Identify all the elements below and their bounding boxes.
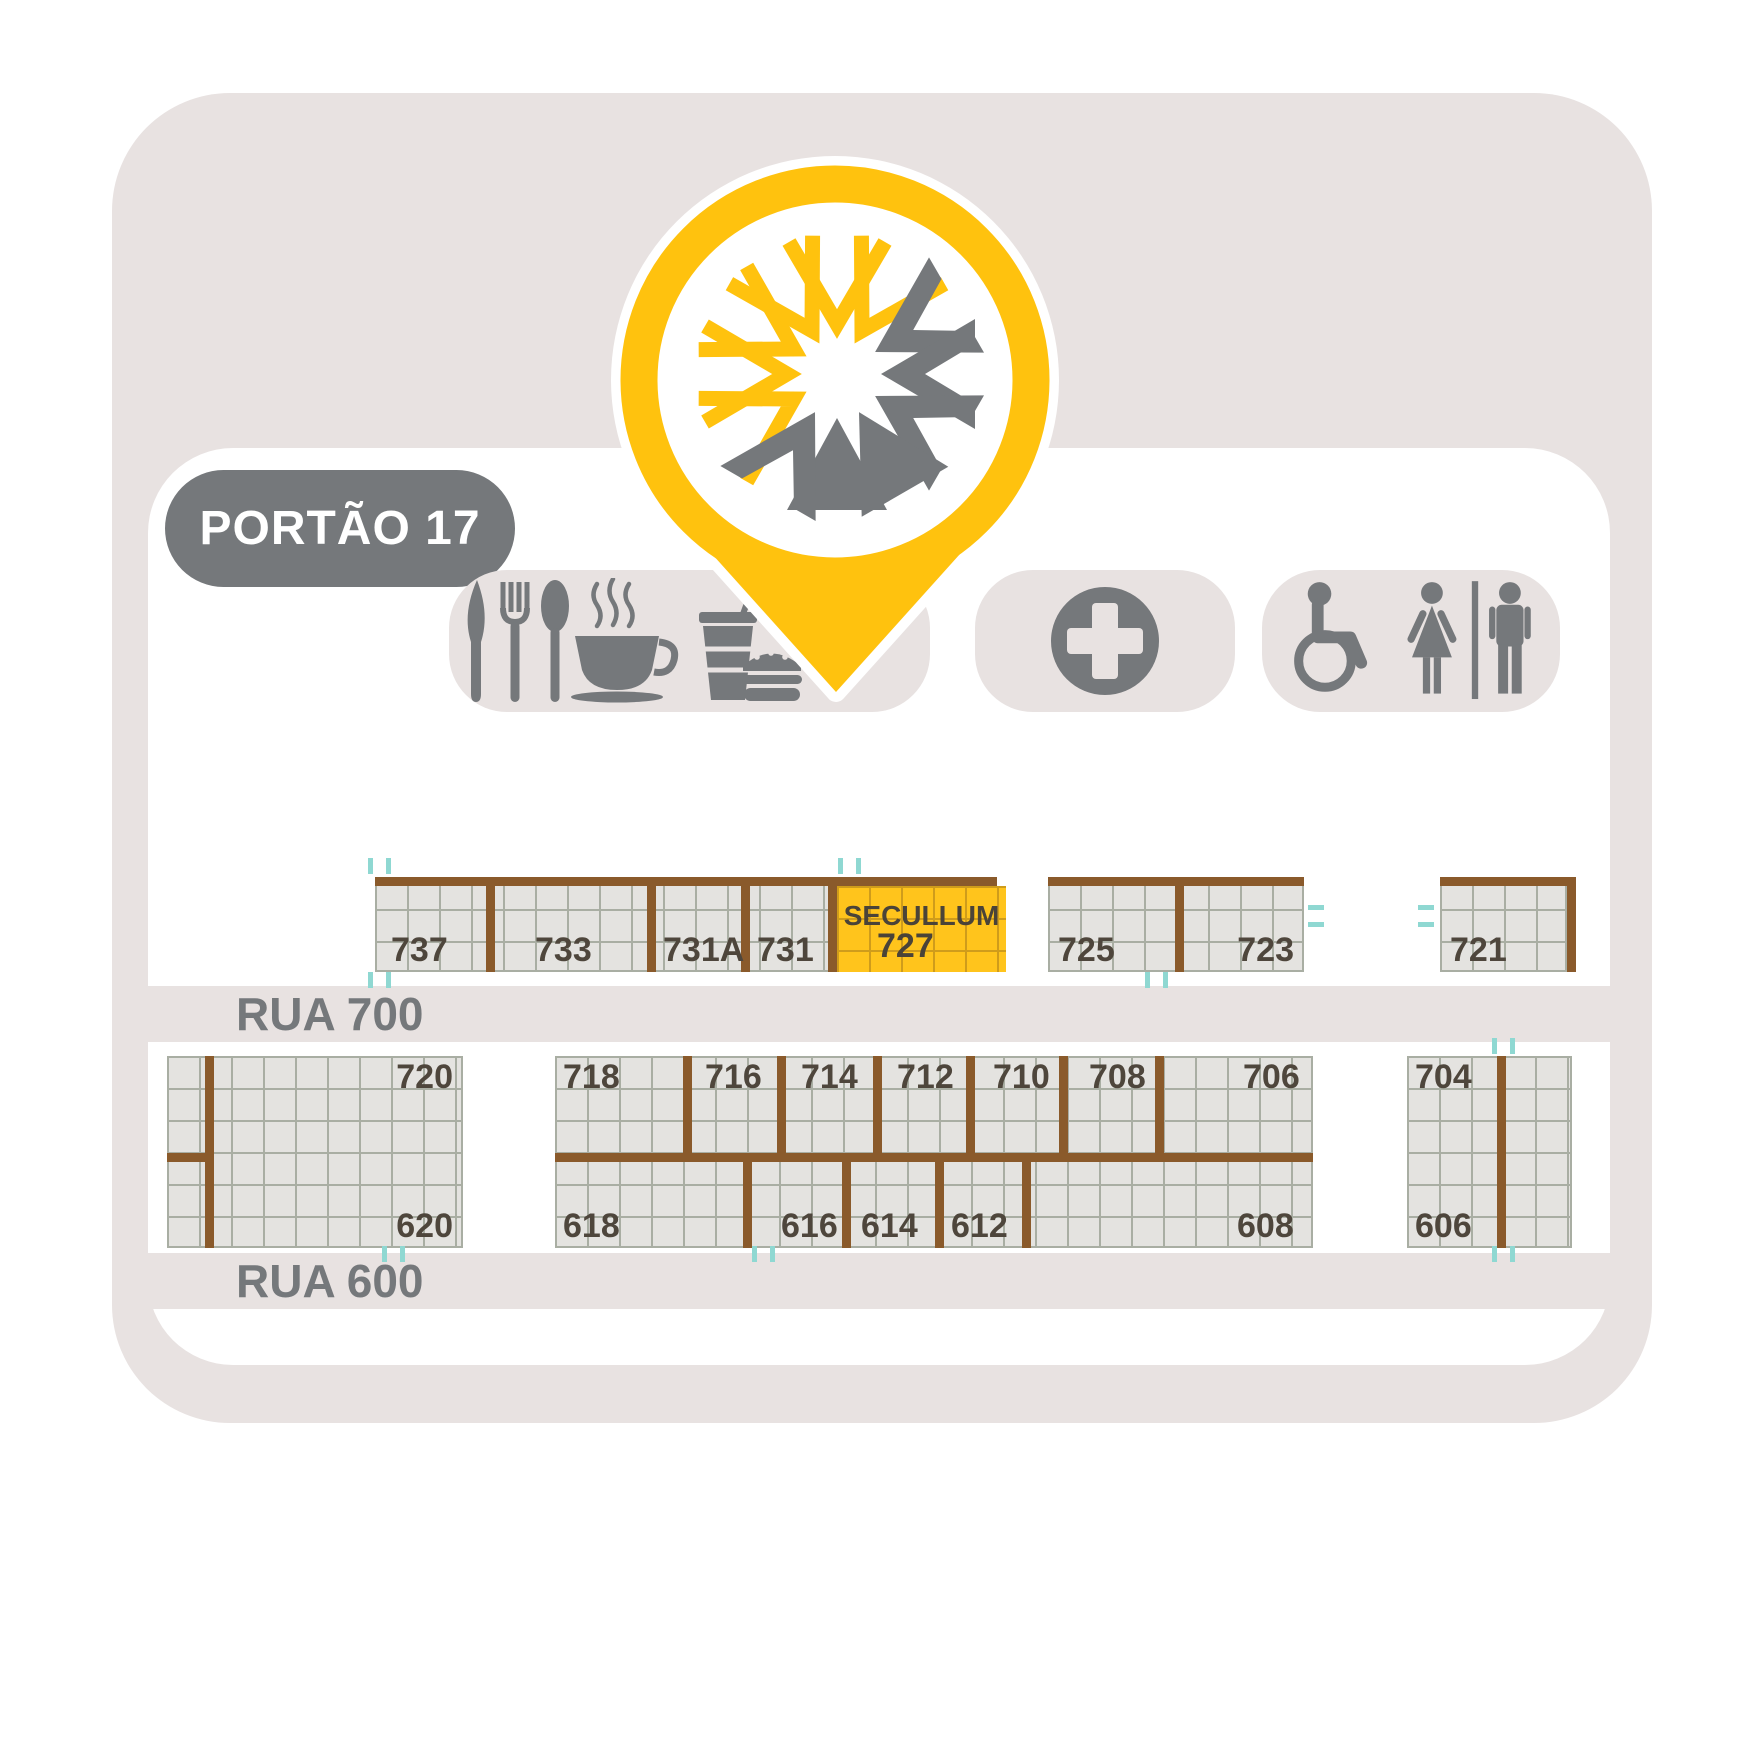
- men-restroom-icon: [1489, 582, 1531, 694]
- booth-614[interactable]: 614: [861, 1209, 918, 1243]
- booth-721[interactable]: 721: [1450, 933, 1507, 967]
- booth-704[interactable]: 704: [1415, 1060, 1472, 1094]
- registration-tick: [386, 858, 391, 874]
- booth-608[interactable]: 608: [1237, 1209, 1294, 1243]
- booth-block-700-mid: 725 723: [1048, 877, 1304, 972]
- booth-divider: [683, 1056, 692, 1162]
- street-rua-600-label: RUA 600: [148, 1254, 423, 1308]
- booth-720[interactable]: 720: [396, 1060, 453, 1094]
- women-restroom-icon: [1411, 582, 1453, 694]
- booth-706[interactable]: 706: [1243, 1060, 1300, 1094]
- booth-divider: [1022, 1153, 1031, 1248]
- registration-tick: [752, 1246, 757, 1262]
- booth-606[interactable]: 606: [1415, 1209, 1472, 1243]
- wheelchair-icon: [1299, 582, 1362, 687]
- booth-divider: [1497, 1056, 1506, 1248]
- location-pin[interactable]: [605, 150, 1065, 710]
- registration-tick: [1492, 1246, 1497, 1262]
- booth-714[interactable]: 714: [801, 1060, 858, 1094]
- booth-727-secullum[interactable]: SECULLUM 727: [828, 886, 1006, 972]
- registration-tick: [1510, 1246, 1515, 1262]
- booth-731[interactable]: 731: [757, 933, 814, 967]
- booth-718[interactable]: 718: [563, 1060, 620, 1094]
- booth-block-700-east: 721: [1440, 877, 1576, 972]
- block-border: [1440, 877, 1567, 886]
- registration-tick: [1308, 905, 1324, 910]
- registration-tick: [856, 858, 861, 874]
- booth-612[interactable]: 612: [951, 1209, 1008, 1243]
- booth-620[interactable]: 620: [396, 1209, 453, 1243]
- booth-divider: [935, 1153, 944, 1248]
- restroom-accessibility-box: [1262, 570, 1560, 712]
- booth-737[interactable]: 737: [391, 933, 448, 967]
- booth-divider: [966, 1056, 975, 1162]
- pin-ring: [639, 184, 1031, 576]
- street-rua-700-label: RUA 700: [148, 987, 423, 1041]
- booth-divider: [647, 877, 656, 972]
- booth-712[interactable]: 712: [897, 1060, 954, 1094]
- registration-tick: [1510, 1038, 1515, 1054]
- registration-tick: [368, 972, 373, 988]
- booth-divider: [1175, 877, 1184, 972]
- registration-tick: [838, 858, 843, 874]
- registration-tick: [1418, 905, 1434, 910]
- booth-divider: [167, 1153, 214, 1162]
- booth-block-east: 704 606: [1407, 1056, 1572, 1248]
- street-row-divider: [555, 1153, 1313, 1162]
- registration-tick: [1492, 1038, 1497, 1054]
- registration-tick: [1418, 922, 1434, 927]
- booth-divider: [842, 1153, 851, 1248]
- registration-tick: [382, 1246, 387, 1262]
- booth-710[interactable]: 710: [993, 1060, 1050, 1094]
- booth-723[interactable]: 723: [1237, 933, 1294, 967]
- booth-708[interactable]: 708: [1089, 1060, 1146, 1094]
- registration-tick: [368, 858, 373, 874]
- registration-tick: [1163, 972, 1168, 988]
- booth-divider: [1059, 1056, 1068, 1162]
- booth-616[interactable]: 616: [781, 1209, 838, 1243]
- booth-block-700-west: 737 733 731A 731 SECULLUM 727: [375, 877, 997, 972]
- booth-727-number: 727: [877, 927, 934, 966]
- gate-17-label: PORTÃO 17: [199, 501, 480, 556]
- venue-map: PORTÃO 17: [0, 0, 1755, 1755]
- booth-block-west: 720 620: [167, 1056, 463, 1248]
- booth-725[interactable]: 725: [1058, 933, 1115, 967]
- booth-divider: [1155, 1056, 1164, 1162]
- restroom-divider: [1472, 581, 1478, 699]
- booth-618[interactable]: 618: [563, 1209, 620, 1243]
- street-rua-600: RUA 600: [148, 1253, 1610, 1309]
- booth-divider: [743, 1153, 752, 1248]
- booth-716[interactable]: 716: [705, 1060, 762, 1094]
- restaurant-icon: [468, 580, 569, 702]
- booth-divider: [486, 877, 495, 972]
- booth-divider: [777, 1056, 786, 1162]
- registration-tick: [770, 1246, 775, 1262]
- first-aid-icon: [1051, 587, 1159, 695]
- booth-733[interactable]: 733: [535, 933, 592, 967]
- booth-block-center: 718 716 714 712 710 708 706 618 616 614 …: [555, 1056, 1313, 1248]
- registration-tick: [1308, 922, 1324, 927]
- booth-divider: [873, 1056, 882, 1162]
- gate-17-pill: PORTÃO 17: [165, 470, 515, 587]
- block-border: [375, 877, 997, 886]
- registration-tick: [1145, 972, 1150, 988]
- street-rua-700: RUA 700: [148, 986, 1610, 1042]
- registration-tick: [400, 1246, 405, 1262]
- booth-731A[interactable]: 731A: [663, 933, 744, 967]
- registration-tick: [386, 972, 391, 988]
- booth-divider: [205, 1056, 214, 1248]
